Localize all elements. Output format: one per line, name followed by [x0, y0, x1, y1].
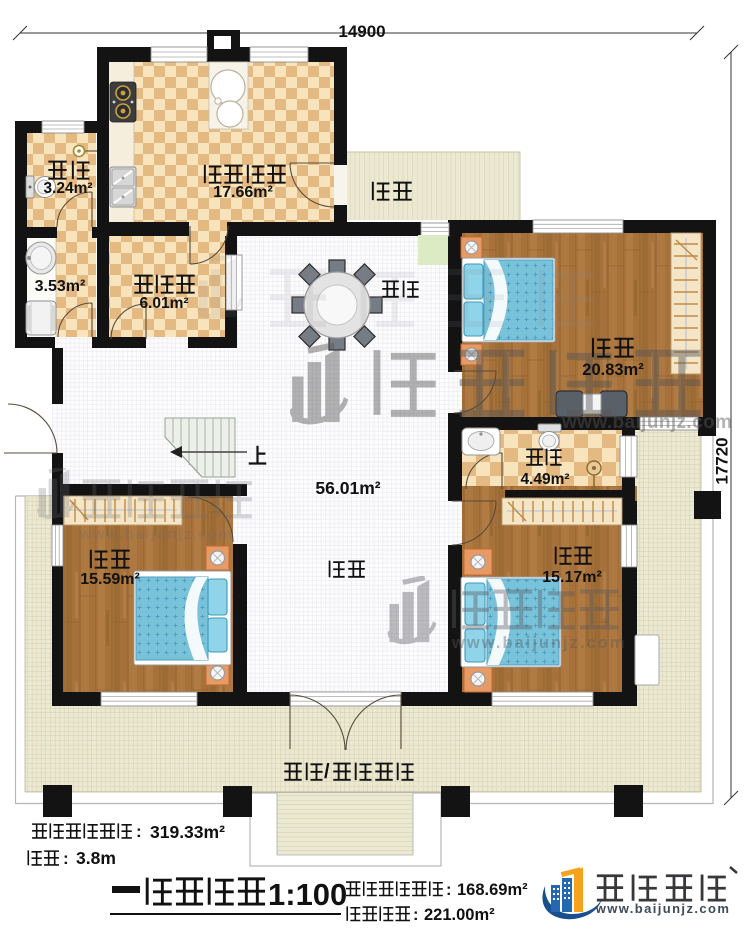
svg-text:15.17m²: 15.17m²: [542, 569, 602, 586]
svg-text:17.66m²: 17.66m²: [213, 184, 273, 201]
svg-text:15.59m²: 15.59m²: [80, 571, 140, 588]
svg-text:www.baijunjz.com: www.baijunjz.com: [451, 634, 626, 652]
svg-text:www.baijunjz.com: www.baijunjz.com: [561, 412, 732, 433]
svg-text::: :: [63, 849, 69, 868]
svg-text::: :: [136, 822, 142, 841]
svg-text:3.8m: 3.8m: [76, 848, 116, 868]
svg-text:www.baijunjz.com: www.baijunjz.com: [595, 901, 731, 916]
svg-text:319.33m²: 319.33m²: [150, 822, 225, 842]
svg-text:17720: 17720: [713, 437, 732, 484]
svg-text:168.69m²: 168.69m²: [457, 881, 528, 899]
svg-text:3.24m²: 3.24m²: [43, 180, 92, 197]
svg-text:3.53m²: 3.53m²: [35, 278, 86, 295]
svg-text:221.00m²: 221.00m²: [424, 906, 495, 924]
svg-text:www.baijunjz.com: www.baijunjz.com: [79, 526, 233, 543]
svg-text:/: /: [324, 761, 330, 783]
svg-text:1:100: 1:100: [268, 877, 347, 912]
svg-text:6.01m²: 6.01m²: [139, 295, 188, 312]
svg-text:4.49m²: 4.49m²: [520, 471, 569, 488]
svg-text::: :: [446, 881, 452, 899]
svg-text::: :: [413, 906, 419, 924]
svg-text:14900: 14900: [338, 22, 385, 41]
svg-text:20.83m²: 20.83m²: [582, 361, 644, 379]
svg-text:56.01m²: 56.01m²: [315, 478, 380, 498]
